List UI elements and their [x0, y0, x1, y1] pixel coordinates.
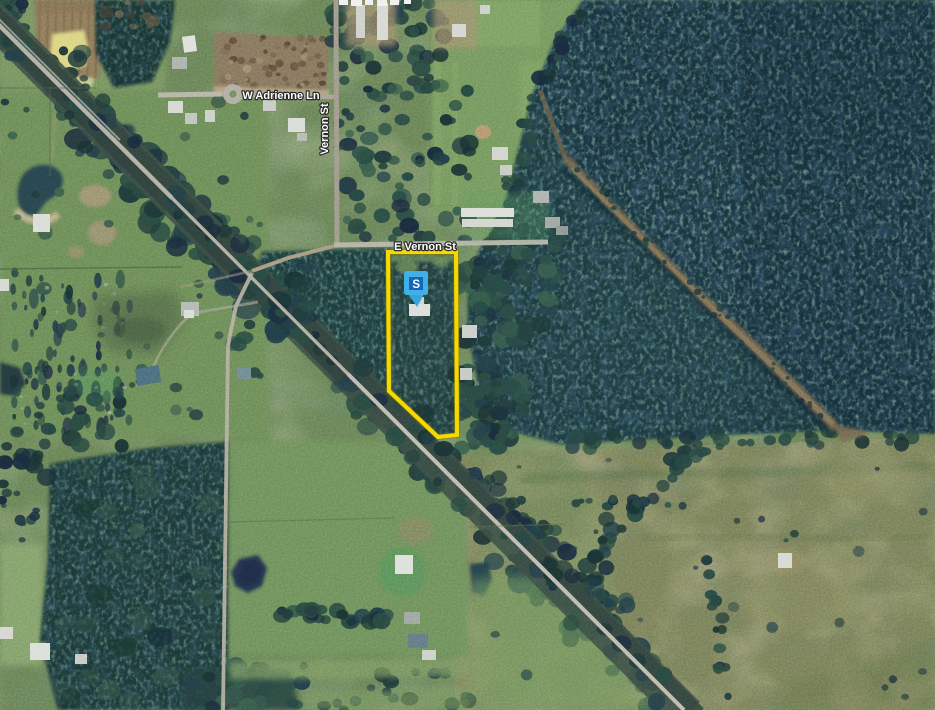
svg-text:E Vernon St: E Vernon St	[394, 241, 456, 253]
svg-text:Vernon St: Vernon St	[319, 103, 331, 155]
svg-text:W Adrienne Ln: W Adrienne Ln	[242, 90, 319, 102]
svg-text:S: S	[412, 279, 420, 291]
